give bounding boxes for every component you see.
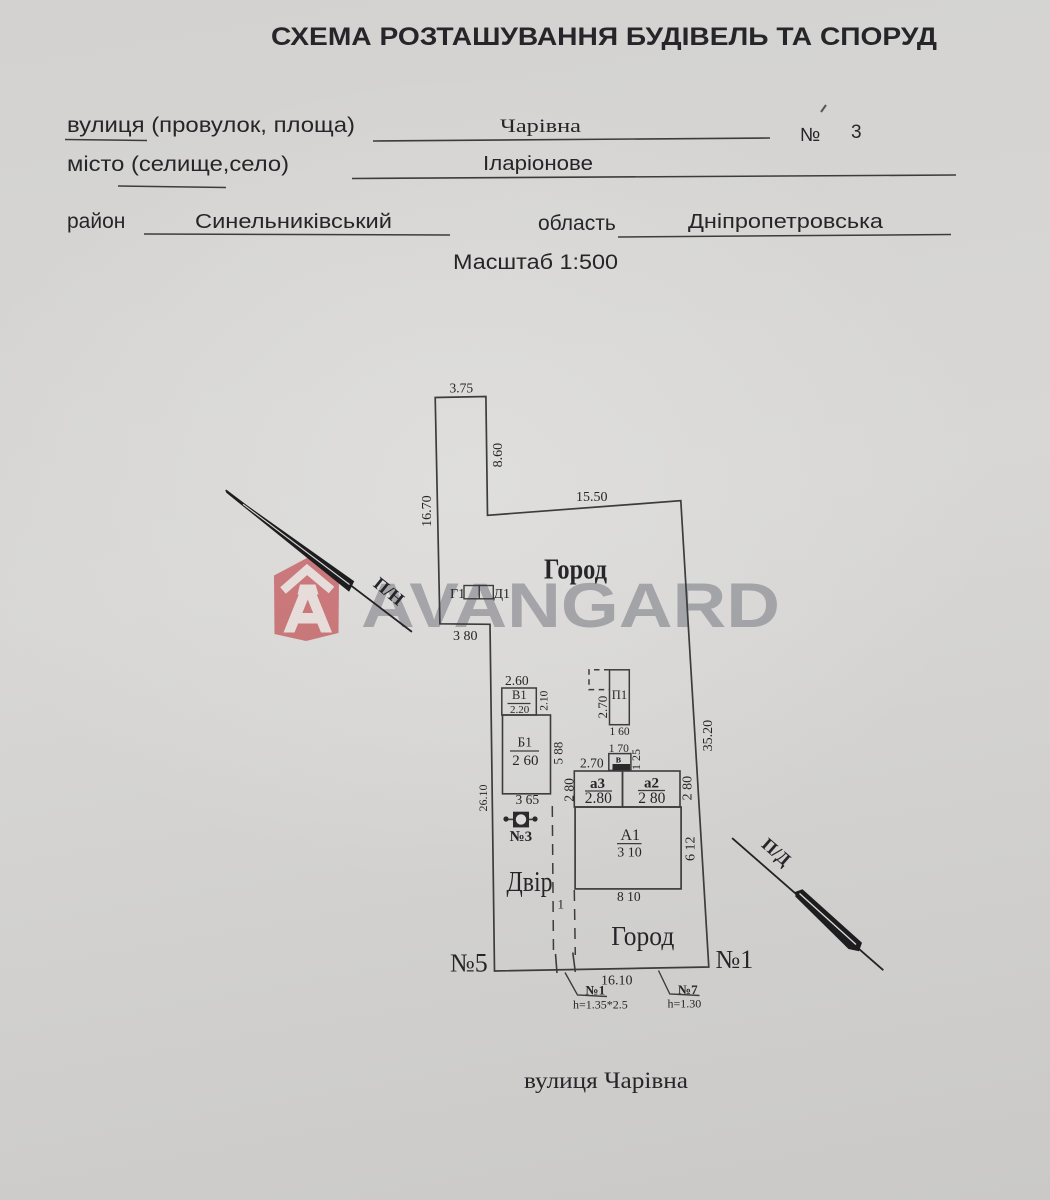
svg-text:Двір: Двір [507, 866, 553, 898]
svg-text:Б1: Б1 [518, 735, 533, 750]
svg-text:область: область [538, 212, 616, 235]
svg-text:2.80: 2.80 [585, 790, 612, 807]
svg-text:1 25: 1 25 [629, 749, 643, 770]
svg-text:2.10: 2.10 [539, 690, 551, 710]
svg-text:№5: №5 [450, 949, 488, 978]
svg-text:2.60: 2.60 [505, 673, 529, 688]
svg-text:№3: №3 [510, 829, 533, 845]
svg-text:№1: №1 [716, 945, 754, 974]
svg-text:15.50: 15.50 [576, 490, 608, 505]
svg-text:П1: П1 [612, 688, 627, 702]
svg-text:2 60: 2 60 [512, 753, 538, 769]
svg-text:в: в [616, 755, 622, 766]
svg-text:3 65: 3 65 [516, 792, 540, 807]
svg-text:2.70: 2.70 [580, 756, 604, 771]
svg-text:26.10: 26.10 [476, 785, 490, 812]
svg-text:вулиця Чарівна: вулиця Чарівна [524, 1068, 688, 1093]
svg-text:№1: №1 [586, 983, 606, 998]
svg-text:3: 3 [851, 122, 862, 143]
svg-text:1 60: 1 60 [610, 726, 630, 738]
svg-text:№: № [800, 125, 820, 146]
svg-text:3 10: 3 10 [617, 846, 642, 861]
svg-text:1: 1 [558, 897, 565, 912]
svg-text:16.10: 16.10 [601, 974, 633, 989]
svg-text:2 80: 2 80 [638, 790, 665, 807]
svg-text:8.60: 8.60 [491, 443, 506, 468]
svg-text:СХЕМА РОЗТАШУВАННЯ БУДІВЕЛЬ Т: СХЕМА РОЗТАШУВАННЯ БУДІВЕЛЬ ТА СПОРУД [271, 23, 937, 51]
svg-text:2 80: 2 80 [561, 778, 576, 802]
svg-text:Город: Город [611, 921, 674, 951]
svg-text:8 10: 8 10 [617, 889, 641, 904]
svg-text:Чарівна: Чарівна [500, 116, 582, 137]
svg-text:№7: №7 [678, 982, 698, 997]
svg-text:А1: А1 [621, 827, 641, 844]
svg-text:В1: В1 [512, 688, 527, 702]
svg-text:Масштаб 1:500: Масштаб 1:500 [453, 251, 618, 274]
svg-text:Город: Город [544, 554, 607, 586]
svg-text:h=1.35*2.5: h=1.35*2.5 [573, 998, 628, 1012]
svg-text:Дніпропетровська: Дніпропетровська [688, 211, 884, 233]
svg-text:h=1.30: h=1.30 [668, 997, 702, 1011]
svg-text:16.70: 16.70 [420, 495, 435, 527]
svg-text:2.20: 2.20 [510, 704, 530, 716]
svg-text:35.20: 35.20 [701, 720, 716, 752]
svg-text:3 80: 3 80 [453, 629, 478, 644]
svg-text:5 88: 5 88 [551, 742, 566, 765]
svg-text:6 12: 6 12 [683, 837, 698, 862]
svg-text:Г1: Г1 [450, 587, 465, 602]
svg-text:2 80: 2 80 [681, 776, 696, 801]
svg-text:1 70: 1 70 [609, 743, 629, 755]
svg-text:3.75: 3.75 [450, 381, 474, 396]
svg-text:вулиця (провулок, площа): вулиця (провулок, площа) [67, 114, 355, 137]
svg-text:Д1: Д1 [494, 587, 511, 602]
svg-text:2.70: 2.70 [595, 696, 610, 719]
svg-text:Синельниківський: Синельниківський [195, 211, 392, 233]
svg-text:район: район [67, 210, 125, 233]
svg-text:Іларіонове: Іларіонове [483, 153, 593, 175]
svg-text:місто (селище,село): місто (селище,село) [67, 153, 289, 176]
